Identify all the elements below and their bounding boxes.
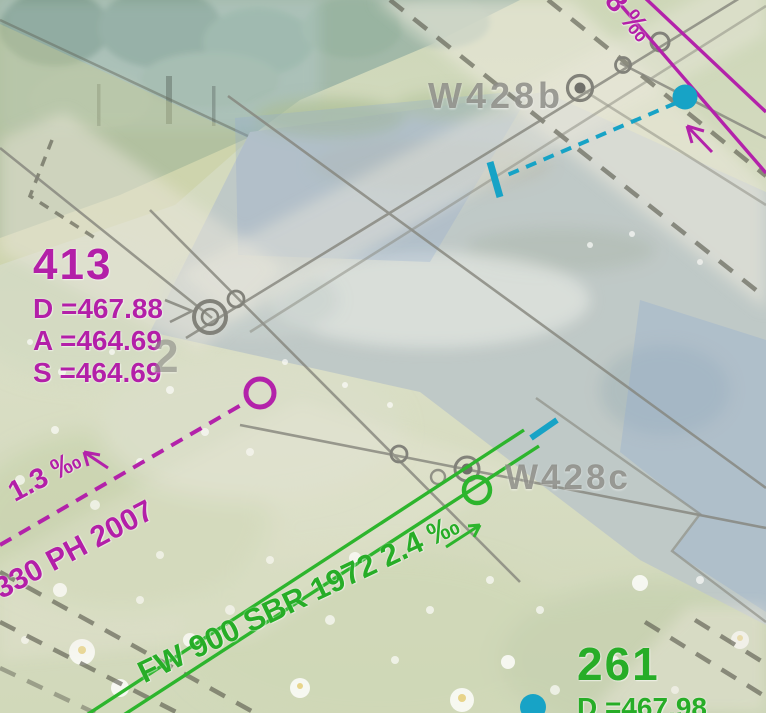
node-261-elevation-d: D =467.98 bbox=[577, 694, 707, 713]
map-canvas[interactable]: 413 D =467.88 A =464.69 S =464.69 W428b … bbox=[0, 0, 766, 713]
node-413-elevation-a: A =464.69 bbox=[33, 327, 162, 355]
manhole-w428b-label: W428b bbox=[428, 78, 564, 114]
node-413-elevation-d: D =467.88 bbox=[33, 295, 163, 323]
stray-digit-label: 2 bbox=[153, 333, 179, 379]
water-node-dot[interactable] bbox=[673, 85, 698, 110]
manhole-w428c-label: W428c bbox=[505, 460, 631, 495]
node-413-id-label: 413 bbox=[33, 243, 112, 287]
node-413-elevation-s: S =464.69 bbox=[33, 359, 161, 387]
node-261-id-label: 261 bbox=[577, 641, 660, 687]
